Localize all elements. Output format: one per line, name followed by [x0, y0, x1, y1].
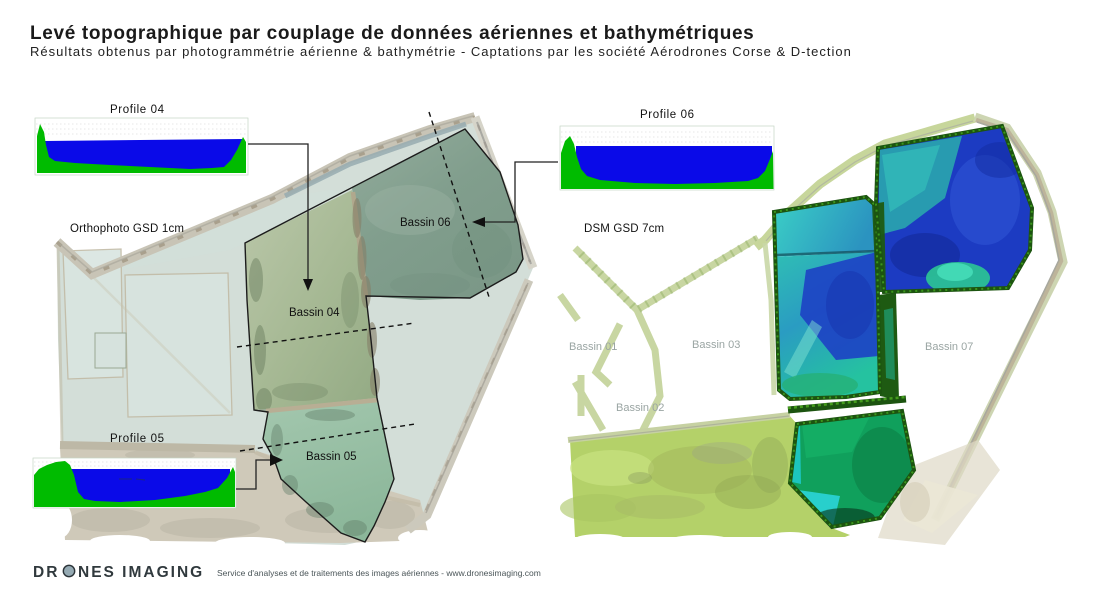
svg-text:Bassin 02: Bassin 02 [616, 402, 664, 414]
svg-text:Bassin 07: Bassin 07 [925, 341, 973, 353]
svg-text:Profile 06: Profile 06 [640, 109, 695, 121]
svg-text:Bassin 03: Bassin 03 [692, 339, 740, 351]
svg-text:Résultats obtenus par photogra: Résultats obtenus par photogrammétrie aé… [30, 44, 852, 59]
svg-text:Orthophoto GSD 1cm: Orthophoto GSD 1cm [70, 223, 184, 235]
svg-text:Service d'analyses et de trait: Service d'analyses et de traitements des… [217, 568, 541, 578]
svg-text:Bassin 05: Bassin 05 [306, 451, 357, 463]
svg-text:Levé topographique par couplag: Levé topographique par couplage de donné… [30, 23, 754, 44]
svg-text:Bassin 06: Bassin 06 [400, 217, 451, 229]
svg-text:DSM GSD 7cm: DSM GSD 7cm [584, 223, 664, 235]
svg-text:Profile 04: Profile 04 [110, 104, 165, 116]
svg-text:Bassin 04: Bassin 04 [289, 307, 340, 319]
svg-text:Profile 05: Profile 05 [110, 433, 165, 445]
svg-text:DR: DR [33, 564, 59, 581]
svg-text:Bassin 01: Bassin 01 [569, 341, 617, 353]
svg-text:NES IMAGING: NES IMAGING [78, 564, 204, 581]
